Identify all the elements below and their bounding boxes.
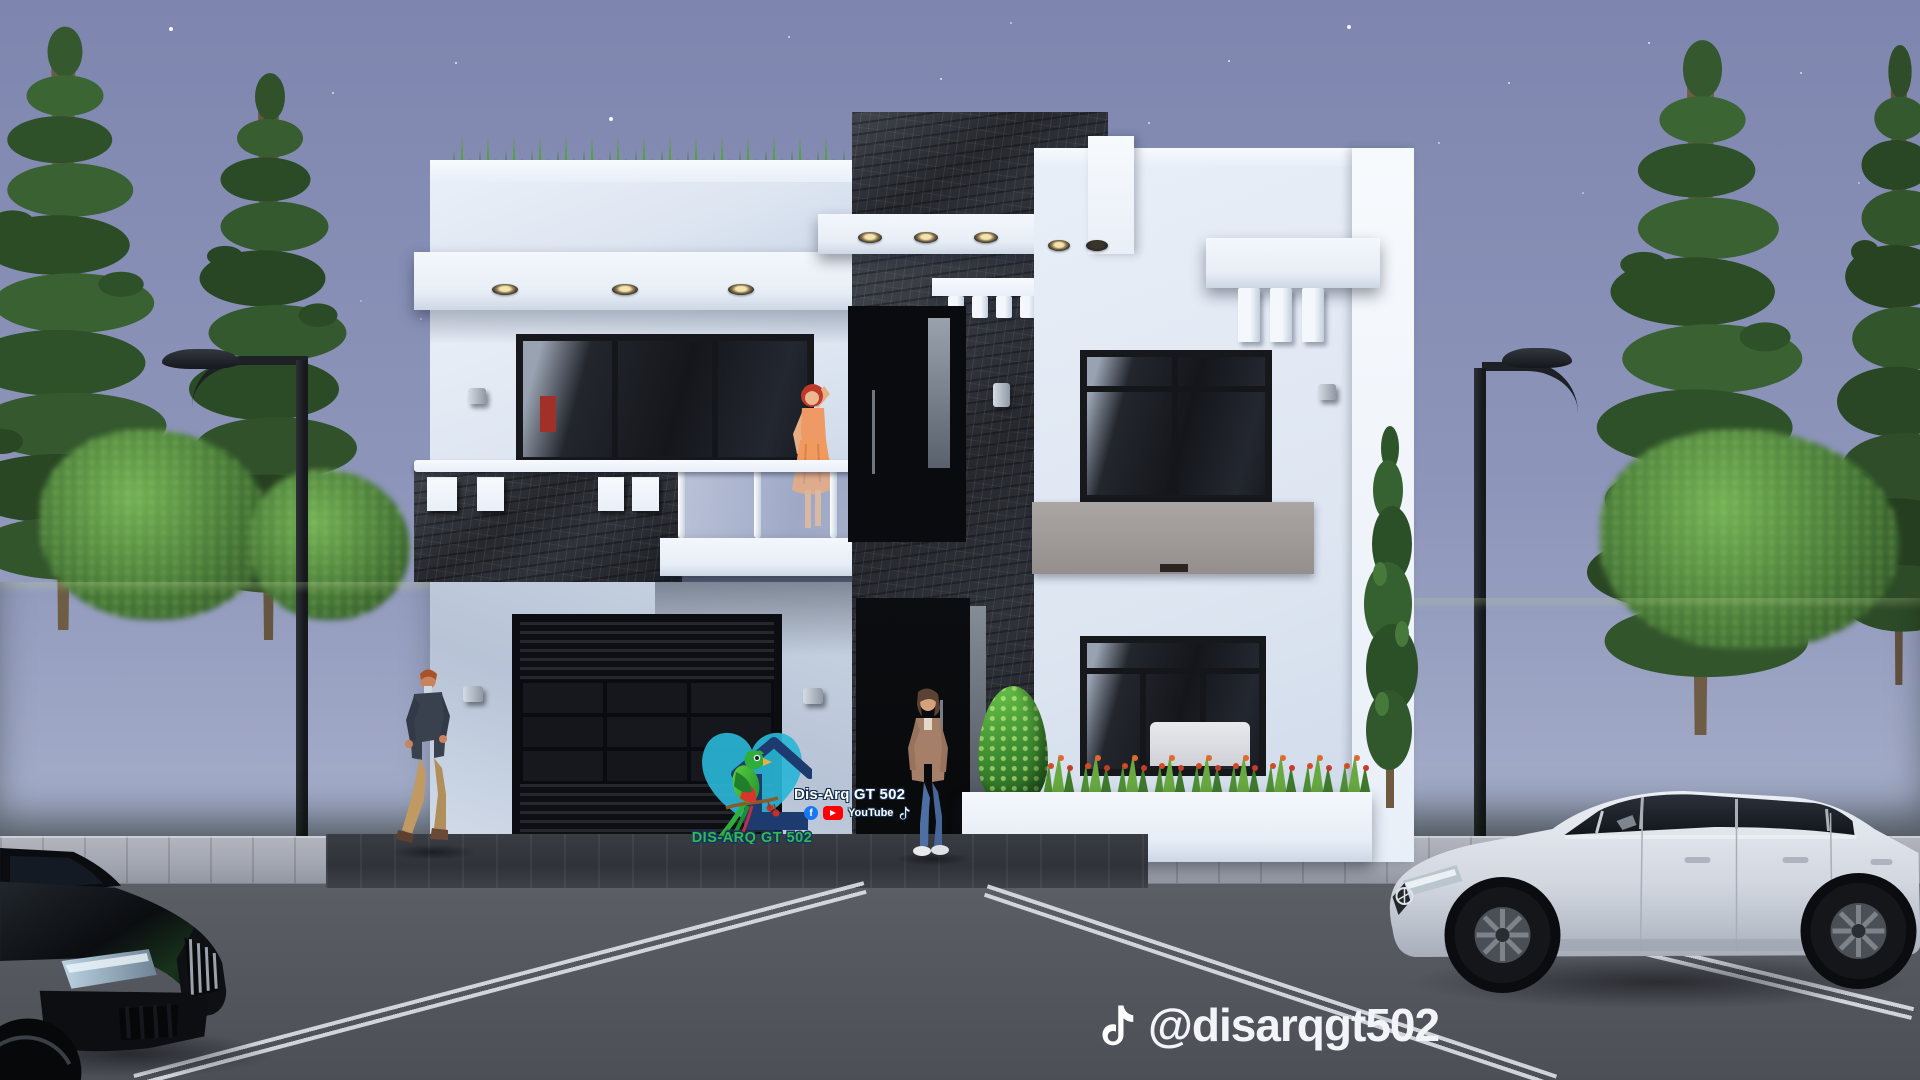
wall-sconce [1318,384,1336,400]
logo-text-white: Dis-Arq GT 502 [794,786,914,803]
window-transom [1087,668,1259,674]
recessed-light [612,284,638,295]
left-parapet-face [430,182,866,252]
logo-text-stylized: DIS-ARQ GT 502 [692,830,812,844]
balcony-door-glass [928,318,950,468]
right-pillar-left [1088,136,1134,254]
scene: DIS-ARQ GT 502 Dis-Arq GT 502 f YouTube … [0,0,1920,1080]
left-soffit [414,252,866,310]
right-canopy [1206,238,1380,288]
tiktok-icon [898,806,910,820]
left-parapet-top [430,160,866,182]
flower-bed [1006,750,1372,796]
man-walking [392,668,464,860]
facade-block [477,477,504,511]
facebook-icon: f [804,806,818,820]
logo-social-row: f YouTube [804,806,910,820]
tiktok-note-icon [1098,1002,1134,1048]
facade-fin [972,296,988,318]
recessed-light [1048,240,1070,251]
facade-fin [1270,288,1292,342]
garage-slats-top [520,622,774,680]
youtube-icon [823,806,843,820]
wall-sconce [468,388,486,404]
balcony-post [678,468,685,538]
street-lamp-right-head [1502,348,1572,368]
interior-artwork [540,396,556,432]
facade-fin [996,296,1012,318]
hedge-left [0,582,445,850]
youtube-label: YouTube [848,807,893,819]
recessed-light [1086,240,1108,251]
balcony-post [830,468,837,538]
wall-lamp [993,383,1010,407]
facade-fin [1302,288,1324,342]
tiktok-handle: @disarqgt502 [1148,998,1439,1052]
disarq-logo: DIS-ARQ GT 502 [692,712,812,844]
facade-block [632,477,659,511]
white-car [1384,733,1920,999]
balcony-post [754,468,761,538]
door-handle [872,390,875,474]
facade-fin [1238,288,1260,342]
wall-sconce [463,686,483,702]
street-lamp-left-head [162,349,240,369]
recessed-light [974,232,998,243]
window-mullion [1172,357,1178,495]
recessed-light [728,284,754,295]
recessed-light [858,232,882,243]
recessed-light [914,232,938,243]
black-car [0,842,248,1080]
tiktok-watermark: @disarqgt502 [1098,998,1439,1052]
woman-standing [896,688,960,864]
facade-block [427,477,457,511]
panel-hardware [1160,564,1188,572]
window-mullion [712,341,718,457]
wall-sconce [803,688,823,704]
window-mullion [612,341,618,457]
recessed-light [492,284,518,295]
facade-block [598,477,624,511]
